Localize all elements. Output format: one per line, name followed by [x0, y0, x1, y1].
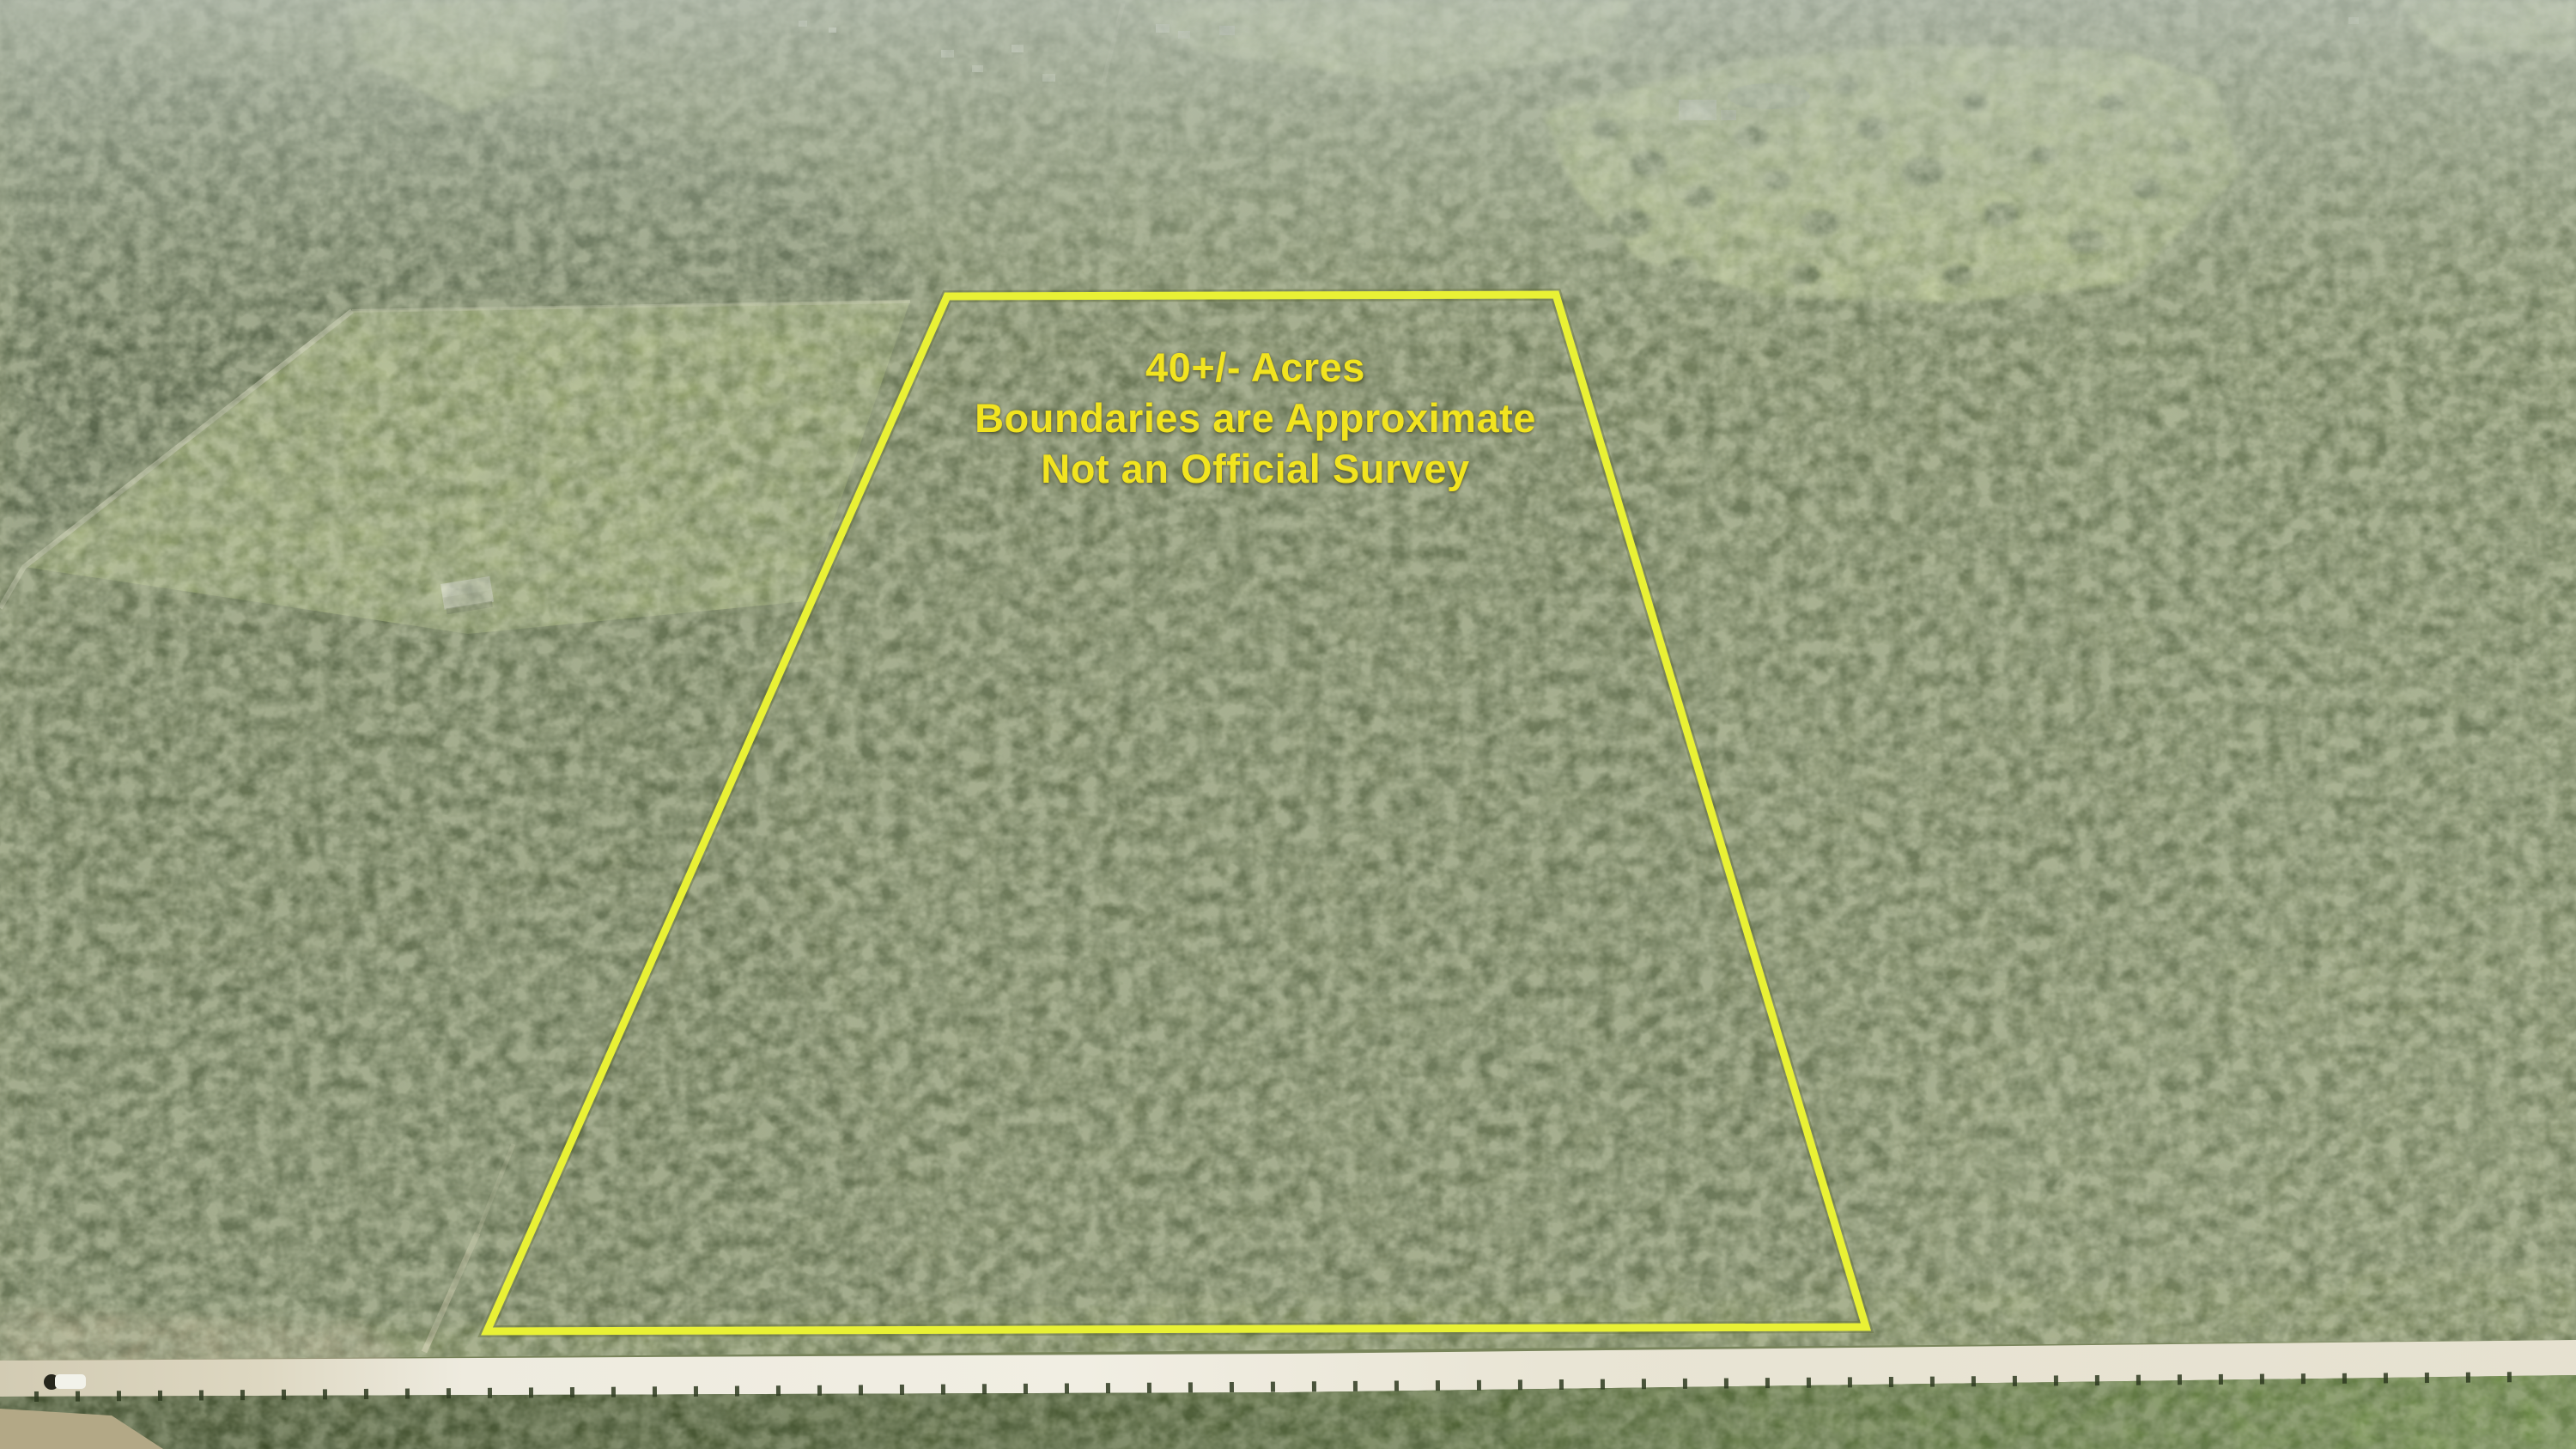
disclaimer-line-2: Not an Official Survey [975, 443, 1536, 494]
acreage-annotation: 40+/- Acres Boundaries are Approximate N… [975, 342, 1536, 494]
haze-overlay [0, 0, 2576, 361]
acreage-line: 40+/- Acres [975, 342, 1536, 393]
aerial-property-photo: 40+/- Acres Boundaries are Approximate N… [0, 0, 2576, 1449]
disclaimer-line-1: Boundaries are Approximate [975, 393, 1536, 443]
aerial-photo-canvas [0, 0, 2576, 1449]
vehicle-on-road [44, 1374, 86, 1390]
